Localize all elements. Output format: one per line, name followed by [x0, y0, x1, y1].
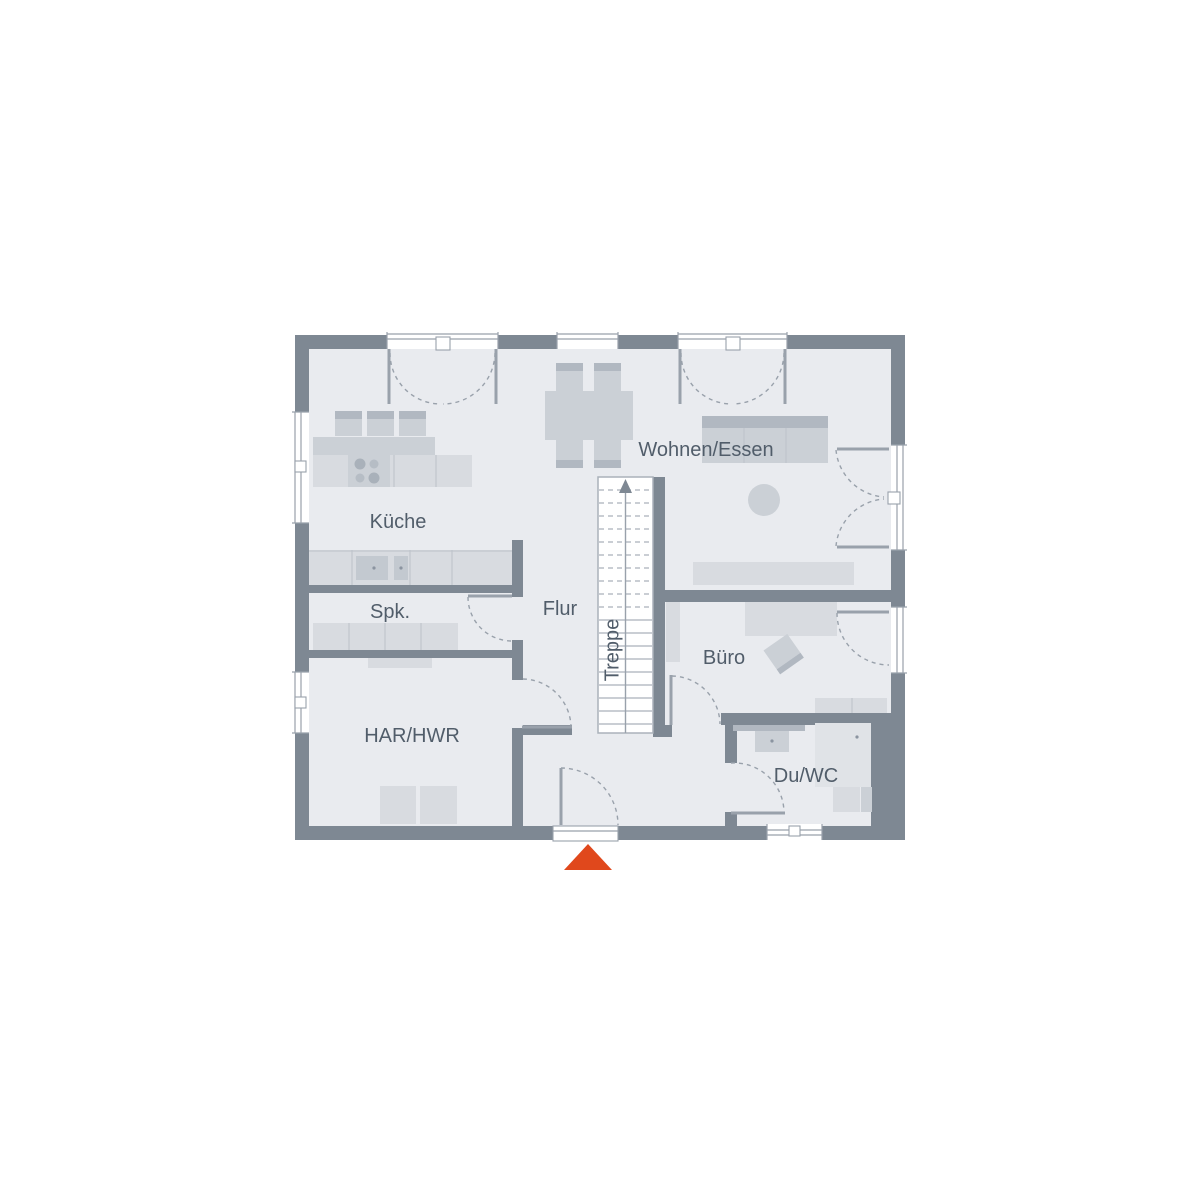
- window-kitchen: [292, 412, 309, 523]
- door-handle-icon: [726, 337, 740, 350]
- toilet: [833, 787, 860, 812]
- window-handle-icon: [789, 826, 800, 836]
- window-handle-icon: [295, 461, 306, 472]
- dining-chair: [594, 440, 621, 460]
- room-label-wohnen-essen: Wohnen/Essen: [638, 439, 773, 461]
- sink: [356, 556, 388, 580]
- door-handle-icon: [888, 492, 900, 504]
- floor-plan-page: Küche Wohnen/Essen Spk. Flur HAR/HWR Bür…: [0, 0, 1200, 1200]
- room-label-flur: Flur: [543, 598, 578, 620]
- dining-table: [545, 391, 633, 440]
- utility-shelf: [368, 658, 432, 668]
- office-cabinet: [815, 698, 887, 713]
- staircase: [598, 477, 653, 733]
- room-label-buero: Büro: [703, 647, 745, 669]
- window-handle-icon: [295, 697, 306, 708]
- dryer: [420, 786, 457, 824]
- room-label-spk: Spk.: [370, 601, 410, 623]
- bar-stool: [367, 411, 394, 419]
- sideboard: [693, 562, 854, 585]
- dining-chair: [556, 440, 583, 460]
- door-handle-icon: [436, 337, 450, 350]
- kitchen-cabinets: [313, 455, 472, 487]
- window-top: [557, 332, 618, 349]
- floor-plan-drawing: Küche Wohnen/Essen Spk. Flur HAR/HWR Bür…: [0, 0, 1200, 1200]
- entrance-marker-icon: [564, 844, 612, 870]
- bar-stool: [335, 411, 362, 419]
- room-label-du-wc: Du/WC: [774, 765, 838, 787]
- desk: [745, 602, 837, 636]
- bar-stool: [399, 411, 426, 419]
- office-shelf: [666, 602, 680, 662]
- window-bath: [767, 824, 822, 840]
- kitchen-bar-counter: [313, 437, 435, 455]
- room-label-kueche: Küche: [370, 511, 427, 533]
- dining-chair: [556, 371, 583, 391]
- window-utility: [292, 672, 309, 733]
- coffee-table: [748, 484, 780, 516]
- cooktop: [348, 455, 390, 487]
- washer: [380, 786, 416, 824]
- room-label-har-hwr: HAR/HWR: [364, 725, 460, 747]
- dining-chair: [594, 371, 621, 391]
- room-label-treppe: Treppe: [601, 619, 623, 682]
